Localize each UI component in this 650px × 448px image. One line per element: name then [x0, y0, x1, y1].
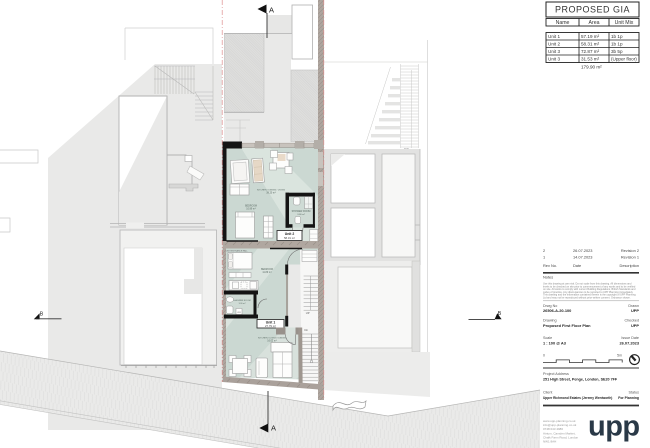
svg-text:Area: Area — [589, 20, 600, 26]
svg-text:Drwg No: Drwg No — [543, 304, 557, 308]
svg-text:3.86 m²: 3.86 m² — [297, 213, 305, 216]
svg-text:UPP: UPP — [631, 308, 639, 313]
svg-text:3.30 m²: 3.30 m² — [239, 302, 246, 305]
svg-text:3b 5p: 3b 5p — [611, 49, 623, 54]
svg-text:1b 1p: 1b 1p — [611, 42, 623, 47]
svg-text:Description: Description — [620, 263, 639, 268]
svg-text:11.89 m²: 11.89 m² — [262, 271, 271, 274]
svg-text:(Upper floor): (Upper floor) — [611, 57, 637, 62]
svg-text:WM: WM — [237, 312, 241, 314]
svg-text:1b 1p: 1b 1p — [611, 34, 623, 39]
svg-text:26.07.2023: 26.07.2023 — [620, 341, 640, 346]
svg-text:PROPOSED GIA: PROPOSED GIA — [555, 5, 630, 15]
svg-text:2: 2 — [543, 248, 545, 253]
svg-text:179.90 m²: 179.90 m² — [581, 64, 602, 69]
svg-text:Unit 2: Unit 2 — [548, 42, 560, 47]
svg-text:For Planning: For Planning — [618, 396, 639, 400]
svg-text:UP: UP — [306, 311, 310, 315]
svg-text:Project Address: Project Address — [543, 372, 569, 376]
svg-text:Drawing: Drawing — [543, 318, 557, 322]
svg-text:Date: Date — [573, 263, 581, 268]
svg-text:57.19 m²: 57.19 m² — [581, 34, 600, 39]
svg-text:58.31 m²: 58.31 m² — [284, 236, 295, 240]
svg-text:SHOWER ROOM: SHOWER ROOM — [233, 300, 250, 302]
svg-text:Drawn: Drawn — [628, 304, 639, 308]
svg-text:UPP: UPP — [631, 323, 639, 328]
svg-text:B: B — [40, 312, 44, 318]
svg-text:58.31 m²: 58.31 m² — [581, 42, 600, 47]
svg-text:Rev No.: Rev No. — [543, 263, 557, 268]
svg-text:5m: 5m — [617, 354, 622, 358]
svg-text:Name: Name — [556, 20, 570, 26]
svg-text:Ltd and may not be reproduced: Ltd and may not be reproduced without pr… — [543, 297, 631, 300]
svg-text:Issue Date: Issue Date — [621, 336, 639, 340]
svg-text:Unit 1: Unit 1 — [548, 34, 560, 39]
svg-text:31.53 m²: 31.53 m² — [581, 57, 600, 62]
svg-text:Notes: Notes — [543, 275, 553, 280]
svg-text:Dn: Dn — [305, 328, 309, 332]
svg-text:251 High Street, Penge, London: 251 High Street, Penge, London, SE20 7FF — [543, 378, 618, 382]
svg-text:upp: upp — [588, 411, 640, 443]
svg-text:0748 043 4986: 0748 043 4986 — [543, 427, 563, 431]
svg-text:38.20 m²: 38.20 m² — [266, 192, 276, 195]
svg-text:72.87 m²: 72.87 m² — [581, 49, 600, 54]
svg-text:16.02 m²: 16.02 m² — [267, 340, 277, 343]
svg-text:Revision 1: Revision 1 — [621, 255, 639, 260]
svg-text:0: 0 — [543, 354, 545, 358]
svg-text:10.89 m²: 10.89 m² — [246, 208, 256, 211]
svg-text:A: A — [271, 424, 276, 433]
svg-text:Unit 3: Unit 3 — [548, 49, 560, 54]
svg-text:1 : 100 @ A3: 1 : 100 @ A3 — [543, 341, 567, 346]
svg-text:Unit 3: Unit 3 — [548, 57, 560, 62]
svg-text:26.07.2023: 26.07.2023 — [573, 248, 592, 253]
svg-text:Revision 2: Revision 2 — [621, 248, 639, 253]
svg-text:Client: Client — [543, 391, 552, 395]
svg-text:NW1 8AH: NW1 8AH — [543, 440, 556, 444]
svg-text:26506-A-20-100: 26506-A-20-100 — [543, 308, 571, 313]
svg-text:B: B — [498, 311, 502, 317]
svg-text:27.79 m²: 27.79 m² — [265, 324, 276, 328]
svg-text:UNIT ENTRANCE HALL: UNIT ENTRANCE HALL — [226, 249, 249, 252]
svg-text:Checked: Checked — [624, 318, 639, 322]
svg-text:1: 1 — [543, 255, 545, 260]
svg-text:Unit Mix: Unit Mix — [615, 20, 634, 26]
svg-text:A: A — [269, 6, 274, 15]
svg-text:Upper Richmond Estates (Jeremy: Upper Richmond Estates (Jeremy Wentworth… — [543, 396, 612, 400]
svg-text:SHOWER ROOM: SHOWER ROOM — [292, 210, 311, 213]
svg-text:Scale: Scale — [543, 336, 552, 340]
svg-text:Proposed First Floor Plan: Proposed First Floor Plan — [543, 323, 591, 328]
svg-text:Status: Status — [629, 391, 640, 395]
svg-text:14.07.2023: 14.07.2023 — [573, 255, 592, 260]
